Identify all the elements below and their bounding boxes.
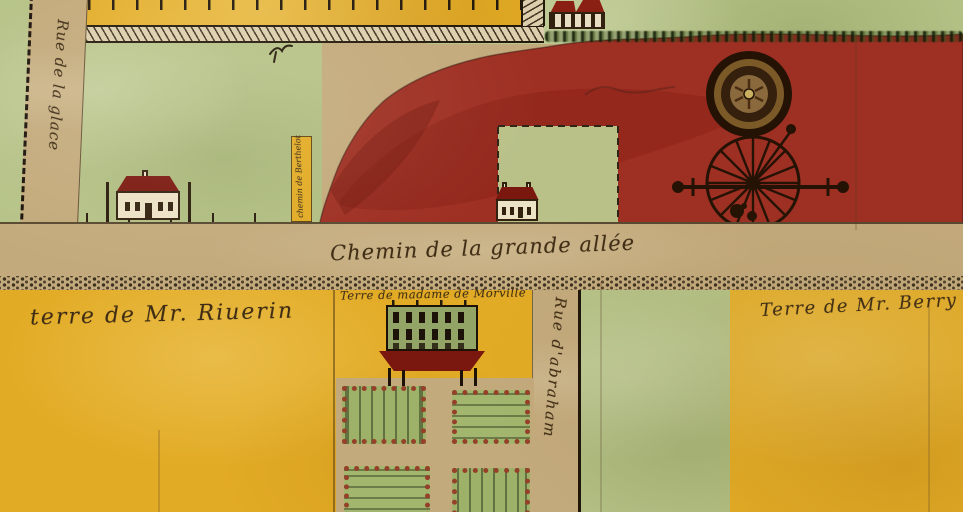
paper-crease	[158, 430, 160, 512]
garden-bed	[452, 468, 530, 512]
paper-crease	[855, 34, 857, 230]
manor-roof	[379, 351, 485, 371]
formal-garden	[336, 378, 534, 512]
house-icon	[110, 170, 186, 222]
round-tower-icon	[706, 51, 792, 137]
map-canvas: Chemin de la grande allée terre de Mr. R…	[0, 0, 963, 512]
hedge-row	[545, 31, 963, 42]
paper-crease	[600, 282, 602, 512]
parcel-boundary-line	[333, 290, 335, 512]
house-icon	[548, 0, 606, 34]
manor-building-icon	[386, 300, 478, 390]
hatched-path-vertical	[521, 0, 545, 26]
paper-crease	[928, 300, 930, 512]
bird-mark-icon	[270, 46, 292, 62]
house-icon	[492, 182, 542, 224]
manor-facade	[386, 305, 478, 351]
hatched-wall-band	[86, 25, 544, 43]
road-top-edge	[0, 222, 963, 224]
garden-bed	[342, 386, 426, 444]
garden-bed	[344, 466, 430, 512]
garden-bed	[452, 390, 530, 444]
